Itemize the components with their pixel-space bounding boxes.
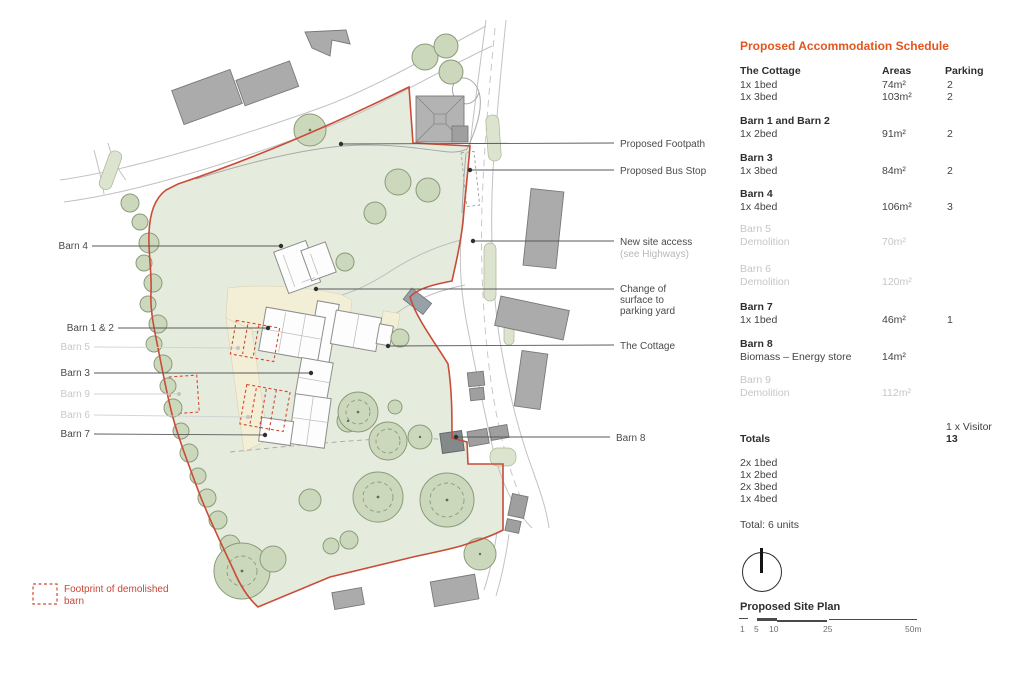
label-surface-3: parking yard	[620, 306, 675, 317]
label-barn12: Barn 1 & 2	[67, 323, 115, 334]
group-name-barn9: Barn 9	[740, 375, 771, 386]
row-area: 70m²	[882, 237, 906, 248]
group-name-cottage: The Cottage	[740, 66, 801, 77]
label-barn5: Barn 5	[61, 342, 91, 353]
row-area: 74m²	[882, 80, 906, 91]
breakdown-item: 2x 3bed	[740, 482, 777, 493]
row-area: 91m²	[882, 129, 906, 140]
column-header-parking: Parking	[945, 66, 984, 77]
row-desc: 1x 2bed	[740, 129, 777, 140]
group-name-barn4: Barn 4	[740, 189, 773, 200]
row-desc: 1x 1bed	[740, 315, 777, 326]
scale-label: 10	[769, 625, 778, 634]
group-name-barn7: Barn 7	[740, 302, 773, 313]
group-name-barn3: Barn 3	[740, 153, 773, 164]
row-parking: 1	[947, 315, 953, 326]
plan-title: Proposed Site Plan	[740, 602, 840, 613]
legend-swatch-demolished	[33, 584, 57, 604]
row-desc: Biomass – Energy store	[740, 352, 851, 363]
row-area: 103m²	[882, 92, 912, 103]
breakdown-item: 2x 1bed	[740, 458, 777, 469]
scale-label: 50m	[905, 625, 922, 634]
label-surface-2: surface to	[620, 295, 664, 306]
group-name-barn5: Barn 5	[740, 224, 771, 235]
column-header-areas: Areas	[882, 66, 911, 77]
legend: Footprint of demolished barn	[33, 584, 169, 607]
breakdown-item: 1x 2bed	[740, 470, 777, 481]
label-barn6: Barn 6	[61, 410, 91, 421]
row-desc: 1x 3bed	[740, 92, 777, 103]
group-name-barn8: Barn 8	[740, 339, 773, 350]
row-parking: 2	[947, 166, 953, 177]
site-plan-page: Barn 4 Barn 1 & 2 Barn 5 Barn 3 Barn 9 B…	[0, 0, 1024, 683]
row-desc: 1x 1bed	[740, 80, 777, 91]
row-area: 112m²	[882, 388, 911, 399]
scale-bar-segment	[777, 620, 827, 622]
group-name-barn12: Barn 1 and Barn 2	[740, 116, 830, 127]
scale-label: 25	[823, 625, 832, 634]
schedule-title: Proposed Accommodation Schedule	[740, 40, 949, 52]
group-name-barn6: Barn 6	[740, 264, 771, 275]
breakdown-item: 1x 4bed	[740, 494, 777, 505]
row-desc: 1x 4bed	[740, 202, 777, 213]
label-footpath: Proposed Footpath	[620, 139, 705, 150]
totals-visitor: 1 x Visitor	[946, 422, 992, 433]
row-area: 46m²	[882, 315, 906, 326]
label-barn3: Barn 3	[61, 368, 91, 379]
scale-bar-segment	[829, 619, 917, 620]
scale-label: 1	[740, 625, 745, 634]
scale-bar-segment	[757, 618, 777, 621]
label-site-access-note: (see Highways)	[620, 249, 689, 260]
row-area: 14m²	[882, 352, 906, 363]
row-parking: 2	[947, 80, 953, 91]
totals-parking: 13	[946, 434, 958, 445]
totals-label: Totals	[740, 434, 770, 445]
label-barn9: Barn 9	[61, 389, 91, 400]
legend-label-line1: Footprint of demolished	[64, 584, 169, 595]
row-parking: 2	[947, 92, 953, 103]
label-site-access: New site access	[620, 237, 692, 248]
row-desc: Demolition	[740, 237, 790, 248]
row-desc: Demolition	[740, 388, 790, 399]
row-area: 84m²	[882, 166, 906, 177]
site-plan-map: Barn 4 Barn 1 & 2 Barn 5 Barn 3 Barn 9 B…	[0, 0, 730, 683]
label-bus-stop: Proposed Bus Stop	[620, 166, 707, 177]
row-desc: Demolition	[740, 277, 790, 288]
row-parking: 3	[947, 202, 953, 213]
row-area: 106m²	[882, 202, 912, 213]
label-barn8: Barn 8	[616, 433, 646, 444]
total-units: Total: 6 units	[740, 520, 799, 531]
scale-label: 5	[754, 625, 759, 634]
label-barn4: Barn 4	[59, 241, 89, 252]
row-desc: 1x 3bed	[740, 166, 777, 177]
legend-label-line2: barn	[64, 596, 84, 607]
label-cottage: The Cottage	[620, 341, 675, 352]
row-area: 120m²	[882, 277, 912, 288]
label-surface-1: Change of	[620, 284, 666, 295]
scale-bar-segment	[739, 618, 748, 619]
label-barn7: Barn 7	[61, 429, 91, 440]
row-parking: 2	[947, 129, 953, 140]
north-arrow-needle	[760, 548, 763, 573]
